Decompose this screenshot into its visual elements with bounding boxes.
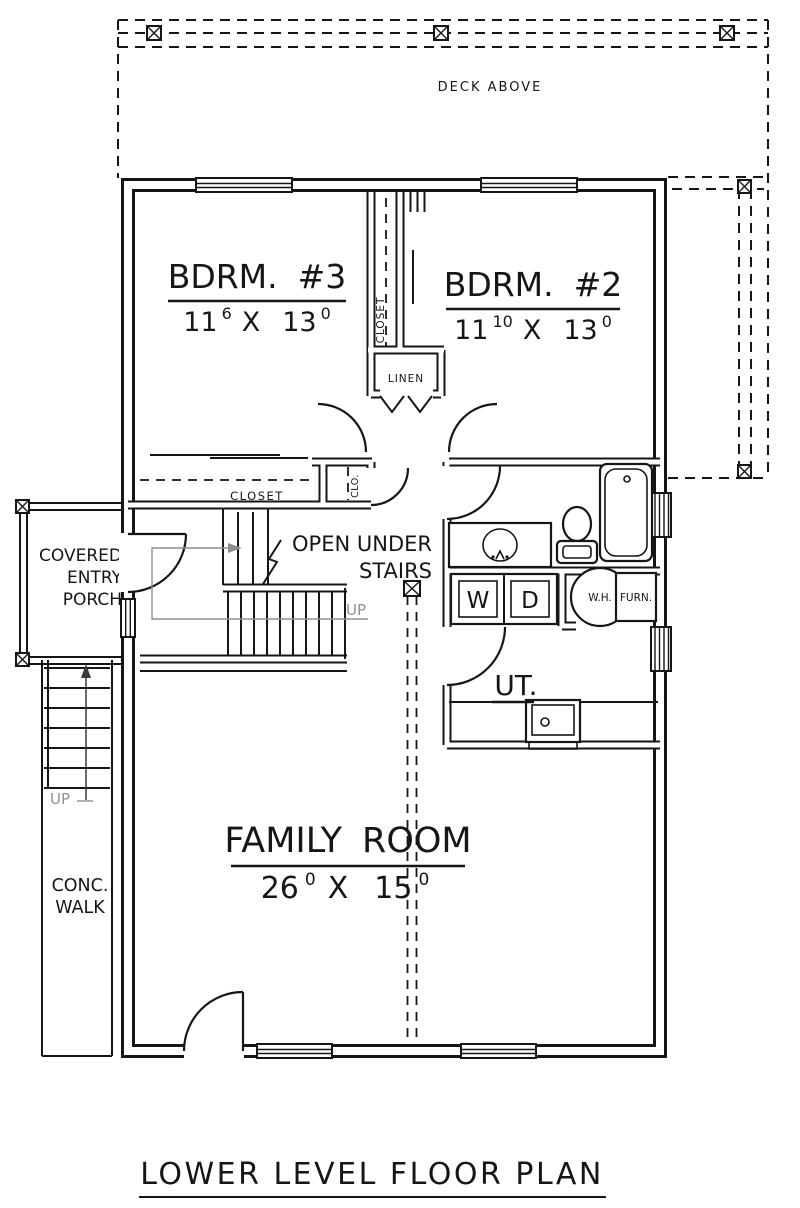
conc-walk-label-line2: WALK bbox=[55, 898, 105, 918]
exterior-stairs: UP CONC. WALK bbox=[42, 660, 112, 1056]
bdrm2-name: BDRM. bbox=[444, 265, 554, 304]
deck-outline: DECK ABOVE bbox=[118, 20, 768, 478]
bdrm3-closet-label: CLOSET bbox=[230, 489, 284, 503]
bdrm3-number: #3 bbox=[298, 257, 347, 296]
floor-plan-page: DECK ABOVE COVERED ENTRY PORCH UP CONC. … bbox=[0, 0, 800, 1208]
vanity-sink bbox=[449, 523, 551, 567]
entry-door-gap bbox=[119, 533, 138, 592]
linen-label: LINEN bbox=[388, 373, 424, 385]
up-interior-label: UP bbox=[346, 601, 366, 619]
bdrm3-label: BDRM.#3 bbox=[168, 257, 347, 296]
window bbox=[651, 493, 671, 537]
stair-direction-arrow bbox=[228, 543, 242, 553]
washer-label: W bbox=[467, 588, 490, 614]
window bbox=[257, 1044, 332, 1058]
beam-line bbox=[404, 581, 420, 1043]
up-arrow bbox=[81, 664, 91, 678]
open-under-stairs-line1: OPEN UNDER bbox=[292, 532, 432, 556]
up-exterior-label: UP bbox=[50, 790, 70, 808]
laundry-tub bbox=[526, 700, 580, 749]
bdrm2-number: #2 bbox=[574, 265, 623, 304]
floor-plan-drawing: DECK ABOVE COVERED ENTRY PORCH UP CONC. … bbox=[0, 0, 800, 1208]
utility-room: W D W.H. FURN. UT. bbox=[449, 568, 658, 749]
covered-entry-porch: COVERED ENTRY PORCH bbox=[16, 500, 128, 666]
bdrm2-door bbox=[449, 404, 497, 452]
family-room-exterior-door bbox=[184, 992, 243, 1051]
linen-bifold-doors bbox=[380, 396, 432, 412]
window bbox=[196, 178, 292, 192]
title-text: LOWER LEVEL FLOOR PLAN bbox=[140, 1157, 604, 1192]
bdrm2-dimensions: 1110X130 bbox=[454, 312, 612, 346]
family-room-label: FAMILYROOM bbox=[224, 821, 471, 861]
open-under-stairs-line2: STAIRS bbox=[359, 559, 432, 583]
family-room-dimensions: 260X150 bbox=[261, 870, 430, 906]
toilet bbox=[557, 507, 597, 563]
window bbox=[461, 1044, 536, 1058]
drawing-title: LOWER LEVEL FLOOR PLAN bbox=[139, 1157, 606, 1197]
water-heater-label: W.H. bbox=[588, 592, 612, 604]
bdrm2-label: BDRM.#2 bbox=[444, 265, 623, 304]
bathroom bbox=[449, 464, 652, 567]
clo-label: CLO. bbox=[350, 474, 361, 498]
window bbox=[651, 627, 671, 671]
bdrm3-door bbox=[318, 404, 366, 452]
window bbox=[121, 599, 135, 637]
porch-label-line2: ENTRY bbox=[67, 568, 123, 588]
porch-label-line1: COVERED bbox=[39, 546, 122, 566]
bath-door bbox=[447, 466, 500, 519]
washer-dryer-counter: W D bbox=[451, 574, 557, 624]
furnace-label: FURN. bbox=[620, 592, 652, 604]
porch-label-line3: PORCH bbox=[63, 590, 122, 610]
bathtub bbox=[600, 464, 652, 561]
dryer-label: D bbox=[521, 588, 539, 614]
clo-door bbox=[371, 468, 408, 505]
conc-walk-label-line1: CONC. bbox=[52, 876, 109, 896]
utility-room-label: UT. bbox=[494, 669, 537, 702]
window bbox=[481, 178, 577, 192]
bdrm2-closet-label: CLOSET bbox=[375, 297, 387, 344]
bdrm3-dimensions: 116X130 bbox=[183, 304, 331, 338]
bdrm3-name: BDRM. bbox=[168, 257, 278, 296]
family-door-gap bbox=[184, 1043, 244, 1060]
furnace: FURN. bbox=[616, 573, 656, 621]
deck-label: DECK ABOVE bbox=[438, 80, 543, 95]
